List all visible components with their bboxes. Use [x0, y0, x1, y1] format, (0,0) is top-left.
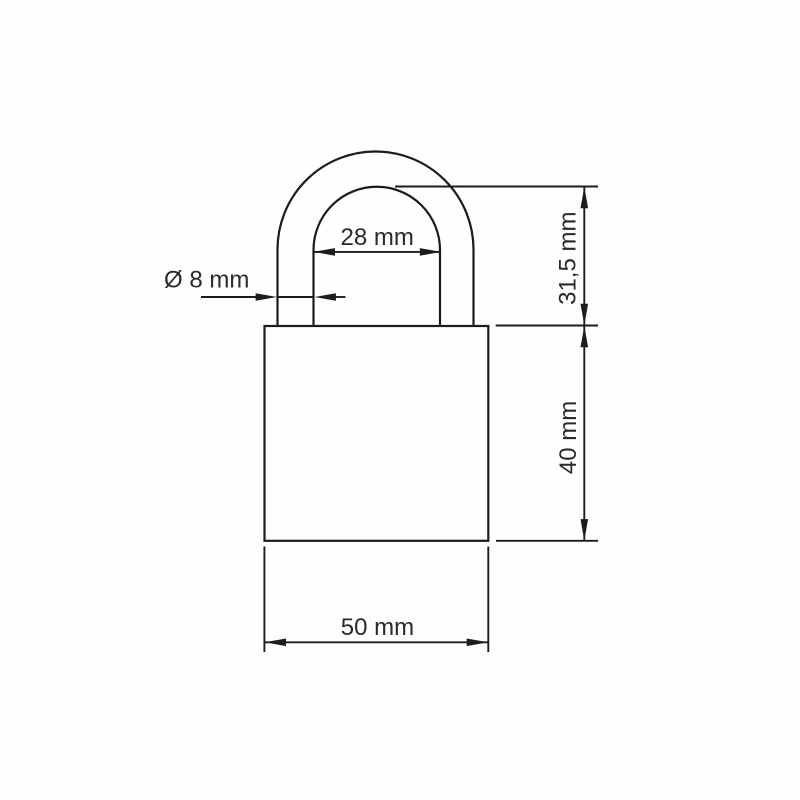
svg-text:40 mm: 40 mm [555, 401, 582, 474]
svg-text:50 mm: 50 mm [341, 614, 414, 641]
svg-text:28 mm: 28 mm [341, 224, 414, 251]
svg-text:31,5 mm: 31,5 mm [555, 212, 582, 305]
svg-text:Ø 8 mm: Ø 8 mm [164, 267, 249, 294]
